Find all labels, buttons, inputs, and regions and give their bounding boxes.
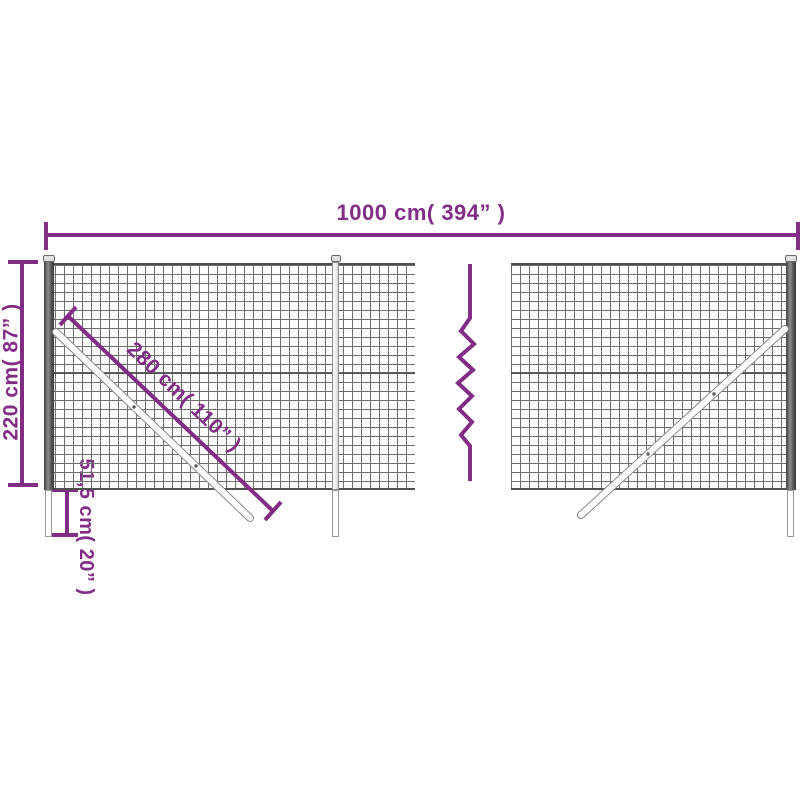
- fence-post-left-cap: [43, 255, 55, 262]
- fence-mesh-right-section: [511, 263, 790, 490]
- height-dimension-label: 220 cm( 87” ): [1, 303, 22, 440]
- brace-dimension-tick-bottom: [265, 502, 281, 520]
- height-dimension-tick-top: [8, 260, 38, 264]
- fence-post-right-underground: [787, 490, 794, 537]
- fence-post-middle: [332, 262, 339, 490]
- wire-mesh-fence-dimension-diagram: 1000 cm( 394” ) 220 cm( 87” ) 51,5 cm( 2…: [0, 0, 800, 800]
- width-dimension-label: 1000 cm( 394” ): [337, 202, 506, 224]
- width-dimension-tick-left: [44, 222, 48, 250]
- fence-post-right-cap: [785, 255, 797, 262]
- fence-post-left-underground: [45, 490, 52, 537]
- fence-post-middle-underground: [332, 490, 339, 537]
- fence-mesh-left-section: [46, 263, 415, 490]
- width-dimension-line: [46, 233, 798, 237]
- fence-post-left: [44, 262, 54, 490]
- width-dimension-tick-right: [796, 222, 800, 250]
- fence-post-middle-cap: [331, 255, 341, 262]
- fence-post-right: [786, 262, 796, 490]
- underground-dimension-line: [65, 490, 69, 537]
- break-symbol: [458, 264, 474, 481]
- height-dimension-tick-bottom: [8, 483, 38, 487]
